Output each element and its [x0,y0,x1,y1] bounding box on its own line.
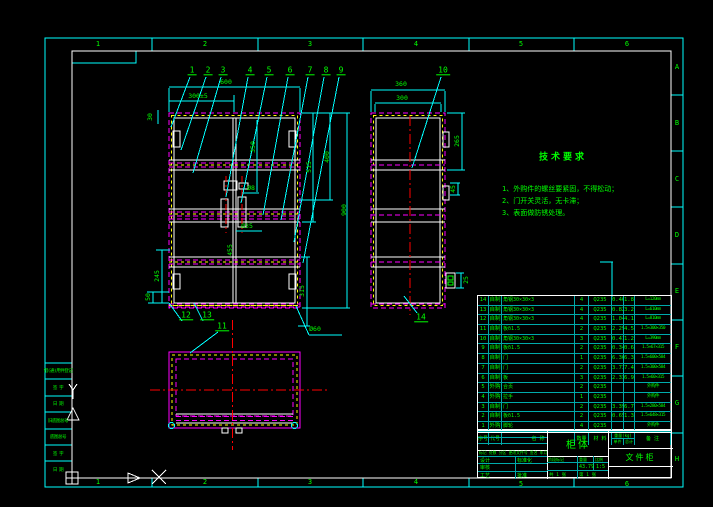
bom-unit-weight: 0.46 [612,296,624,305]
bom-material: Q235 [589,296,612,305]
bom-name: 角钢30×30×3 [502,315,575,324]
bom-remark: L=610mm [635,306,671,315]
bom-remark: 外购件 [635,383,671,392]
bom-name: 板δ1.5 [502,344,575,353]
cad-drawing-sheet: 123456 123456 ABCDEFGH 借(通)用件登记签 字日 期旧底图… [0,0,713,507]
scale-label: 比例 [595,457,603,463]
bom-total-weight: 1.82 [624,296,635,305]
bom-total-weight: 0.68 [624,344,635,353]
bom-material: Q235 [589,403,612,412]
bom-material: Q235 [589,412,612,421]
bom-material: Q235 [589,383,612,392]
bom-material: Q235 [589,325,612,334]
bom-code: 外购 [489,383,502,392]
bom-total-weight [624,393,635,402]
bom-qty: 2 [575,344,589,353]
bom-table: 14 自制 角钢30×30×3 4 Q235 0.46 1.82 L=120mm… [477,295,672,430]
bom-material: Q235 [589,374,612,383]
bom-name: 角钢30×30×3 [502,306,575,315]
bom-code: 自制 [489,325,502,334]
bom-no: 6 [478,374,489,383]
bom-no: 7 [478,364,489,373]
bom-qty: 4 [575,315,589,324]
bom-code: 自制 [489,344,502,353]
bom-row: 9 自制 板δ1.5 2 Q235 0.34 0.68 1.5×67×315 [478,344,671,354]
design-label: 设计 [480,457,490,464]
bom-total-weight: 1.30 [624,412,635,421]
bom-unit-weight [612,393,624,402]
process-label: 工艺 [480,472,490,479]
bom-row: 7 自制 门 2 Q235 3.73 7.46 1.5×300×584 [478,364,671,374]
bom-no: 13 [478,306,489,315]
bom-remark: 1.5×600×584 [635,354,671,363]
bom-unit-weight: 1.04 [612,315,624,324]
bom-row: 4 外购 拉手 1 Q235 外购件 [478,393,671,403]
bom-total-weight: 6.36 [624,354,635,363]
bom-code: 自制 [489,306,502,315]
bom-material: Q235 [589,354,612,363]
bom-total-weight: 1.23 [624,335,635,344]
check-label: 审核 [480,464,490,471]
revision-header-row: 标记 处数 分区 更改文件号 签名 年月日 [479,450,547,456]
bom-name: 板δ1.5 [502,325,575,334]
bom-remark: L=810mm [635,315,671,324]
bom-no: 14 [478,296,489,305]
title-block: 标记 处数 分区 更改文件号 签名 年月日 设计 标准化 审核 工艺 批准 柜体… [477,430,672,478]
sheet-number: 第 1 张 [579,472,596,478]
bom-name: 合页 [502,383,575,392]
product-name: 文件柜 [608,448,673,466]
bom-qty: 2 [575,412,589,421]
bom-remark: 1.5×60×315 [635,374,671,383]
bom-remark: 外购件 [635,393,671,402]
bom-qty: 3 [575,374,589,383]
bom-total-weight: 7.46 [624,364,635,373]
bom-unit-weight: 0.82 [612,306,624,315]
bom-name: 门 [502,354,575,363]
bom-material: Q235 [589,315,612,324]
bom-remark: 1.5×67×315 [635,344,671,353]
bom-unit-weight: 2.33 [612,374,624,383]
bom-total-weight: 6.78 [624,403,635,412]
bom-code: 自制 [489,296,502,305]
bom-qty: 1 [575,393,589,402]
bom-unit-weight [612,383,624,392]
bom-qty: 2 [575,403,589,412]
bom-name: 板 [502,374,575,383]
bom-name: 角钢30×30×3 [502,335,575,344]
weight-value: 43.79 [579,464,594,470]
bom-total-weight: 4.16 [624,315,635,324]
bom-code: 自制 [489,403,502,412]
bom-remark: 1.5×300×350 [635,325,671,334]
bom-unit-weight: 6.36 [612,354,624,363]
weight-label: 重量 [579,457,587,463]
bom-total-weight: 3.28 [624,306,635,315]
bom-row: 2 自制 板δ1.5 2 Q235 0.65 1.30 1.5×648×315 [478,412,671,422]
sheet-total: 共 1 张 [549,472,566,478]
note-item: 3、表面做防锈处理。 [502,208,569,218]
bom-remark: L=390mm [635,335,671,344]
bom-name: 角钢30×30×3 [502,296,575,305]
bom-code: 外购 [489,393,502,402]
bom-row: 3 自制 门 2 Q235 3.39 6.78 1.5×280×584 [478,403,671,413]
bom-rows: 14 自制 角钢30×30×3 4 Q235 0.46 1.82 L=120mm… [478,296,671,432]
bom-remark: 1.5×280×584 [635,403,671,412]
bom-row: 12 自制 角钢30×30×3 4 Q235 1.04 4.16 L=810mm [478,315,671,325]
bom-code: 自制 [489,364,502,373]
bom-material: Q235 [589,306,612,315]
bom-unit-weight: 2.29 [612,325,624,334]
bom-row: 11 自制 板δ1.5 2 Q235 2.29 4.58 1.5×300×350 [478,325,671,335]
bom-name: 门 [502,364,575,373]
bom-remark: 1.5×300×584 [635,364,671,373]
bom-material: Q235 [589,393,612,402]
bom-no: 5 [478,383,489,392]
bom-no: 8 [478,354,489,363]
bom-name: 拉手 [502,393,575,402]
bom-unit-weight: 0.65 [612,412,624,421]
bom-qty: 2 [575,383,589,392]
bom-no: 11 [478,325,489,334]
bom-unit-weight: 0.34 [612,344,624,353]
bom-material: Q235 [589,364,612,373]
bom-material: Q235 [589,335,612,344]
bom-unit-weight: 3.73 [612,364,624,373]
bom-name: 板δ1.5 [502,412,575,421]
bom-no: 3 [478,403,489,412]
bom-total-weight: 6.99 [624,374,635,383]
bom-qty: 4 [575,296,589,305]
bom-code: 自制 [489,374,502,383]
bom-remark: L=120mm [635,296,671,305]
stage-mark-label: 阶段标记 [548,457,564,463]
bom-code: 自制 [489,412,502,421]
bom-code: 自制 [489,335,502,344]
bom-row: 8 自制 门 1 Q235 6.36 6.36 1.5×600×584 [478,354,671,364]
bom-unit-weight: 0.41 [612,335,624,344]
bom-total-weight [624,383,635,392]
bom-remark: 1.5×648×315 [635,412,671,421]
bom-row: 13 自制 角钢30×30×3 4 Q235 0.82 3.28 L=610mm [478,306,671,316]
bom-row: 10 自制 角钢30×30×3 3 Q235 0.41 1.23 L=390mm [478,335,671,345]
bom-qty: 2 [575,364,589,373]
bom-no: 9 [478,344,489,353]
bom-total-weight: 4.58 [624,325,635,334]
bom-material: Q235 [589,344,612,353]
standardization-label: 标准化 [517,457,532,464]
bom-row: 14 自制 角钢30×30×3 4 Q235 0.46 1.82 L=120mm [478,296,671,306]
approve-label: 批准 [517,472,527,479]
bom-code: 自制 [489,354,502,363]
bom-qty: 4 [575,306,589,315]
bom-row: 6 自制 板 3 Q235 2.33 6.99 1.5×60×315 [478,374,671,384]
bom-row: 5 外购 合页 2 Q235 外购件 [478,383,671,393]
scale-value: 1:5 [596,464,605,470]
bom-no: 2 [478,412,489,421]
note-item: 1、外购件的螺丝要紧固，不得松动； [502,184,618,194]
bom-no: 10 [478,335,489,344]
bom-no: 12 [478,315,489,324]
part-name: 柜体 [548,431,608,456]
note-item: 2、门开关灵活，无卡滞； [502,196,583,206]
bom-no: 4 [478,393,489,402]
bom-qty: 1 [575,354,589,363]
bom-qty: 3 [575,335,589,344]
bom-name: 门 [502,403,575,412]
bom-qty: 2 [575,325,589,334]
bom-code: 自制 [489,315,502,324]
bom-unit-weight: 3.39 [612,403,624,412]
